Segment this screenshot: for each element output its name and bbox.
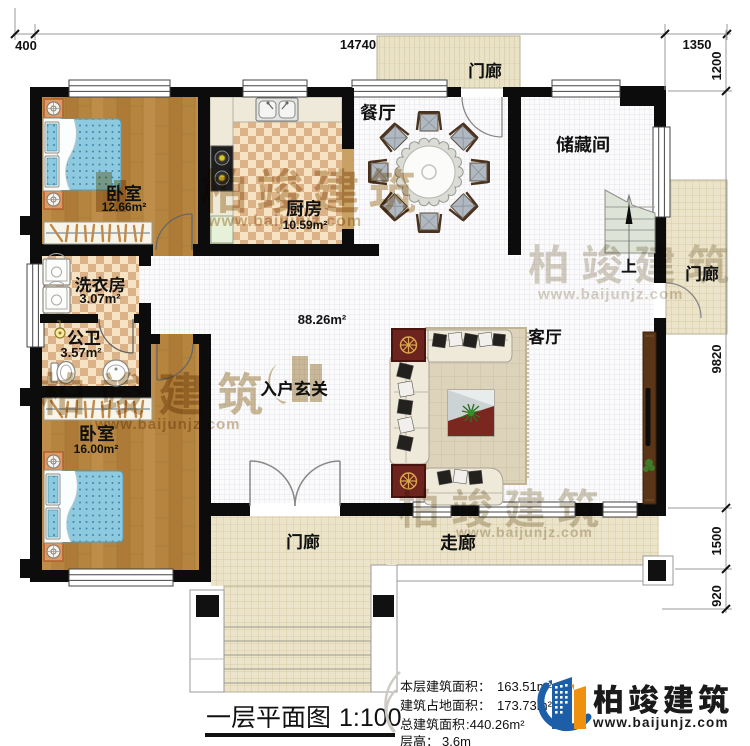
svg-text:12.66m²: 12.66m² — [102, 200, 147, 214]
svg-text:400: 400 — [15, 38, 37, 53]
svg-text:1200: 1200 — [709, 52, 724, 81]
svg-text:3.57m²: 3.57m² — [60, 345, 102, 360]
svg-text:920: 920 — [709, 585, 724, 607]
svg-text:3.07m²: 3.07m² — [79, 291, 121, 306]
svg-text::440.26m²: :440.26m² — [466, 717, 525, 732]
svg-text:9820: 9820 — [709, 345, 724, 374]
svg-text:3.6m: 3.6m — [442, 734, 471, 746]
svg-text:1500: 1500 — [709, 527, 724, 556]
svg-text:www.baijunjz.com: www.baijunjz.com — [94, 416, 240, 433]
svg-text:www.baijunjz.com: www.baijunjz.com — [537, 286, 683, 303]
svg-text:14740: 14740 — [340, 37, 376, 52]
svg-text:www.baijunjz.com: www.baijunjz.com — [455, 524, 593, 540]
svg-text:88.26m²: 88.26m² — [298, 312, 347, 327]
svg-text:1350: 1350 — [683, 37, 712, 52]
svg-text:16.00m²: 16.00m² — [74, 442, 119, 456]
svg-text:10.59m²: 10.59m² — [283, 218, 328, 232]
svg-text:www.baijunjz.com: www.baijunjz.com — [592, 715, 729, 730]
